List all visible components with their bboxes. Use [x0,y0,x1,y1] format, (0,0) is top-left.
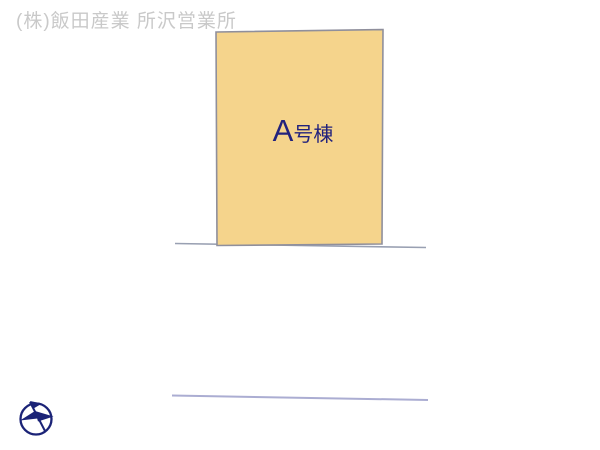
building-a-label-main: A [273,113,294,148]
building-a-label-sub: 号棟 [293,123,333,146]
boundary-line-lower [172,396,428,401]
north-compass-icon [14,393,60,441]
site-plan-canvas: (株)飯田産業 所沢営業所 A号棟 [0,0,600,450]
site-plan-drawing: A号棟 [0,0,600,450]
north-compass-glyph [20,401,54,435]
